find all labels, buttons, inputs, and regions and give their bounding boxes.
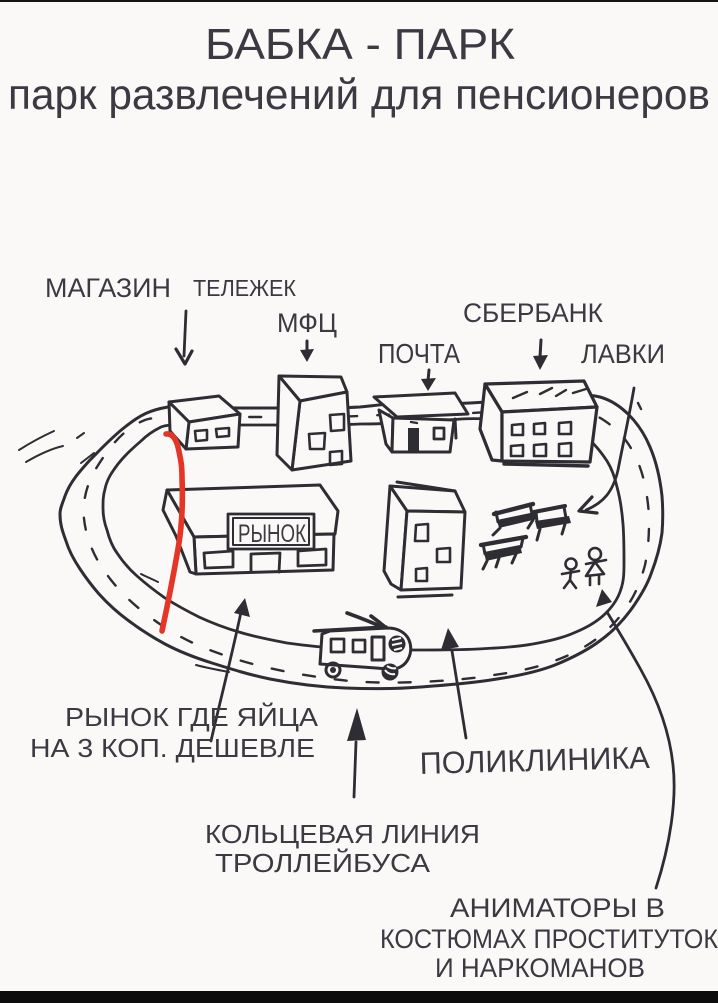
svg-text:КОСТЮМАХ ПРОСТИТУТОК: КОСТЮМАХ ПРОСТИТУТОК: [380, 924, 718, 954]
svg-text:ТЕЛЕЖЕК: ТЕЛЕЖЕК: [193, 275, 297, 301]
svg-text:ЛАВКИ: ЛАВКИ: [581, 339, 665, 369]
svg-text:АНИМАТОРЫ В: АНИМАТОРЫ В: [450, 893, 665, 923]
svg-text:МАГАЗИН: МАГАЗИН: [45, 273, 171, 303]
svg-text:КОЛЬЦЕВАЯ ЛИНИЯ: КОЛЬЦЕВАЯ ЛИНИЯ: [205, 819, 480, 849]
svg-text:НА 3 КОП. ДЕШЕВЛЕ: НА 3 КОП. ДЕШЕВЛЕ: [30, 733, 315, 763]
svg-text:И НАРКОМАНОВ: И НАРКОМАНОВ: [435, 953, 645, 983]
svg-text:парк развлечений для пенсионер: парк развлечений для пенсионеров: [8, 71, 710, 119]
svg-text:ПОЧТА: ПОЧТА: [378, 338, 460, 369]
svg-text:ПОЛИКЛИНИКА: ПОЛИКЛИНИКА: [419, 740, 650, 781]
svg-text:РЫНОК: РЫНОК: [238, 520, 306, 548]
svg-text:МФЦ: МФЦ: [277, 308, 337, 338]
svg-text:БАБКА - ПАРК: БАБКА - ПАРК: [205, 20, 515, 69]
svg-text:ТРОЛЛЕЙБУСА: ТРОЛЛЕЙБУСА: [215, 848, 431, 878]
svg-text:РЫНОК ГДЕ ЯЙЦА: РЫНОК ГДЕ ЯЙЦА: [65, 702, 319, 732]
svg-text:СБЕРБАНК: СБЕРБАНК: [463, 298, 603, 328]
